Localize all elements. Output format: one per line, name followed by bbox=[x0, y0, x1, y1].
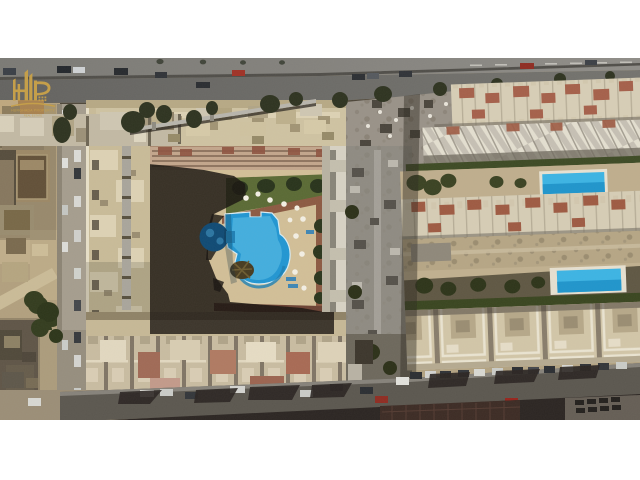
svg-text:REAL ESTATE: REAL ESTATE bbox=[24, 114, 43, 118]
svg-text:HURGHADA PROPERTY: HURGHADA PROPERTY bbox=[11, 109, 55, 113]
